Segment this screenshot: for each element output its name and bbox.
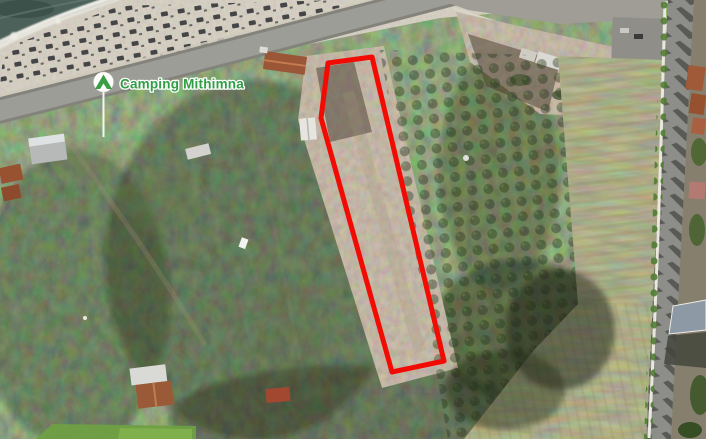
- parking-area: [611, 17, 665, 63]
- map-viewport[interactable]: Camping Mithimna: [0, 0, 706, 439]
- map-canvas[interactable]: Camping Mithimna: [0, 0, 706, 439]
- terrain-layer: [0, 0, 706, 439]
- lawn-bottomleft: [36, 424, 196, 439]
- poi-label[interactable]: Camping Mithimna: [120, 77, 244, 92]
